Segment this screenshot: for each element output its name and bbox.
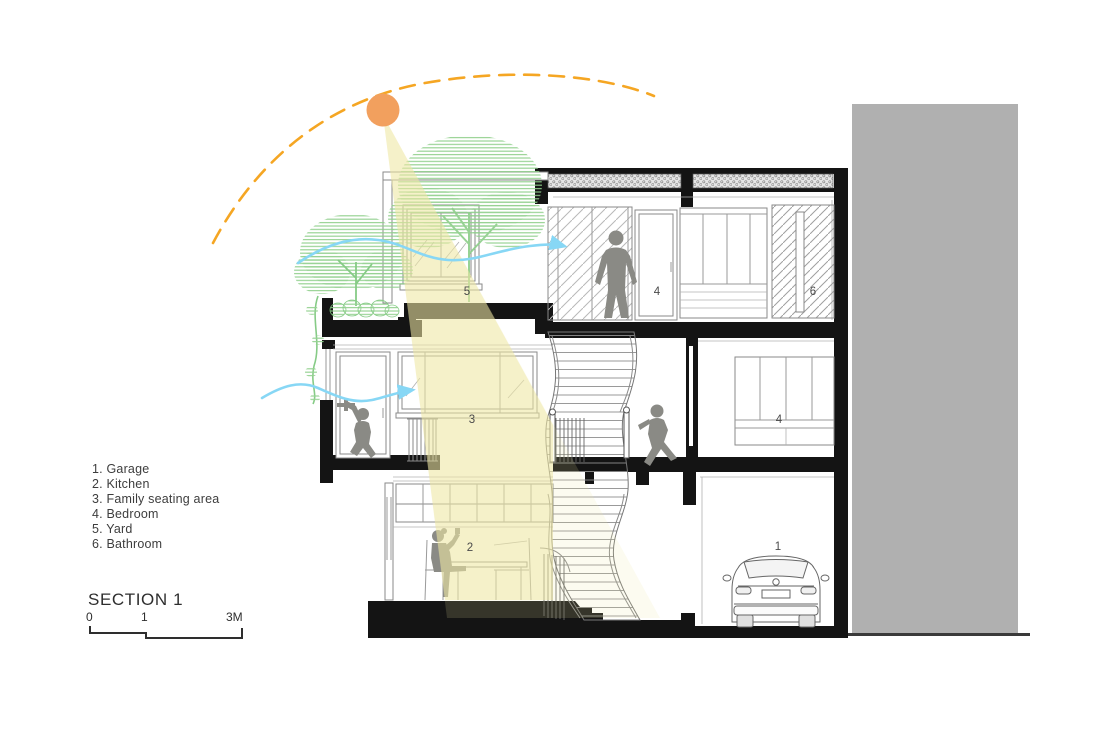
scale-start-label: 0 xyxy=(86,610,93,624)
legend-item-kitchen: 2. Kitchen xyxy=(92,477,150,491)
section-canvas: 1 2 3 4 4 5 6 1. Garage 2. Kitchen 3. Fa… xyxy=(0,0,1100,733)
scale-bar: 0 1 3M xyxy=(86,610,243,638)
room-number-bathroom: 6 xyxy=(810,286,816,298)
roof-insulation-hatch xyxy=(548,174,681,188)
architectural-section-drawing: 1 2 3 4 4 5 6 1. Garage 2. Kitchen 3. Fa… xyxy=(0,0,1100,733)
room-number-bedroom-middle: 4 xyxy=(776,414,783,426)
room-number-garage: 1 xyxy=(775,541,781,553)
scale-mid-label: 1 xyxy=(141,610,148,624)
bathroom-glass xyxy=(772,205,834,318)
legend-item-bathroom: 6. Bathroom xyxy=(92,537,162,551)
sun-icon xyxy=(367,94,400,127)
upper-bedroom-door xyxy=(635,210,677,320)
scale-bar-line xyxy=(90,626,242,638)
room-number-bedroom-upper: 4 xyxy=(654,286,661,298)
room-number-kitchen: 2 xyxy=(467,542,473,554)
legend-item-family-seating: 3. Family seating area xyxy=(92,492,219,506)
car xyxy=(723,556,829,627)
legend-item-garage: 1. Garage xyxy=(92,462,149,476)
room-number-yard: 5 xyxy=(464,286,470,298)
neighbor-building xyxy=(852,104,1018,633)
room-number-family-seating: 3 xyxy=(469,414,475,426)
ground-line xyxy=(846,633,1030,636)
legend-item-bedroom: 4. Bedroom xyxy=(92,507,159,521)
roof-insulation-hatch xyxy=(693,174,833,188)
legend: 1. Garage 2. Kitchen 3. Family seating a… xyxy=(92,462,219,551)
figure-running-child xyxy=(638,405,677,467)
scale-end-label: 3M xyxy=(226,610,243,624)
section-title: SECTION 1 xyxy=(88,590,183,609)
upper-wardrobe xyxy=(680,208,767,318)
middle-wardrobe xyxy=(735,357,834,445)
legend-item-yard: 5. Yard xyxy=(92,522,133,536)
